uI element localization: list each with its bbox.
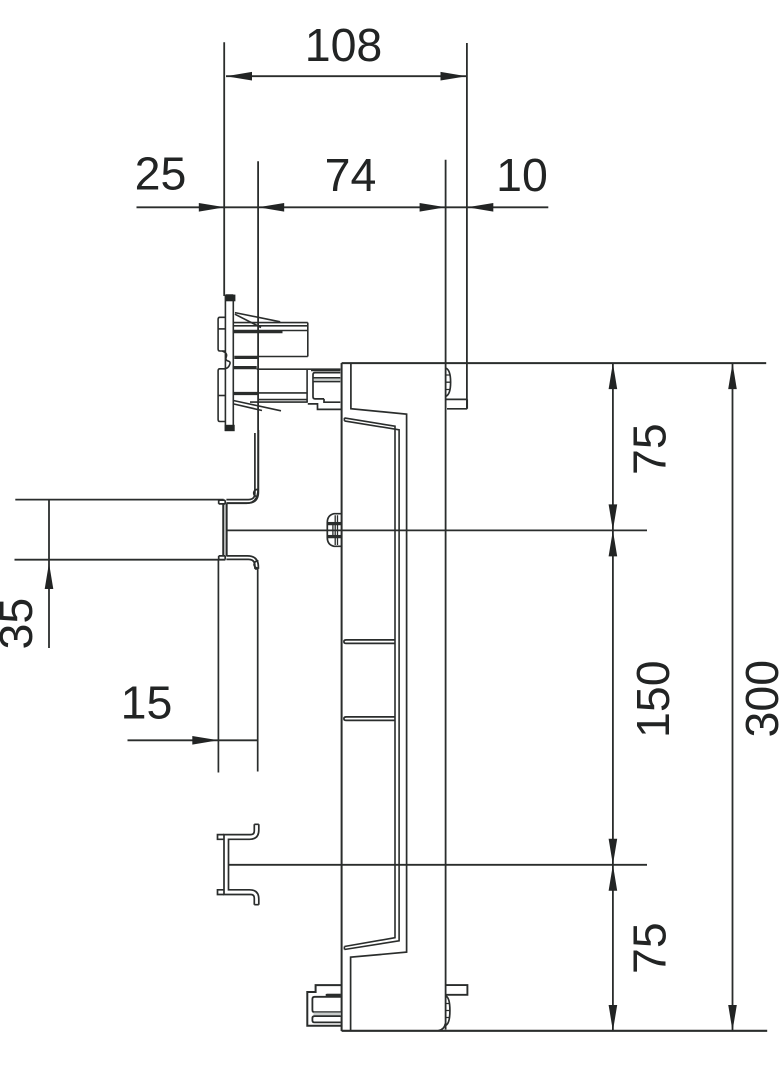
svg-text:150: 150 (627, 660, 679, 738)
svg-text:75: 75 (624, 423, 676, 475)
svg-text:75: 75 (624, 922, 676, 974)
svg-text:74: 74 (325, 149, 377, 201)
svg-text:15: 15 (121, 676, 173, 728)
svg-text:300: 300 (736, 660, 784, 738)
svg-text:108: 108 (305, 19, 383, 71)
svg-text:25: 25 (135, 148, 187, 200)
svg-text:35: 35 (0, 598, 42, 650)
svg-text:10: 10 (496, 149, 548, 201)
